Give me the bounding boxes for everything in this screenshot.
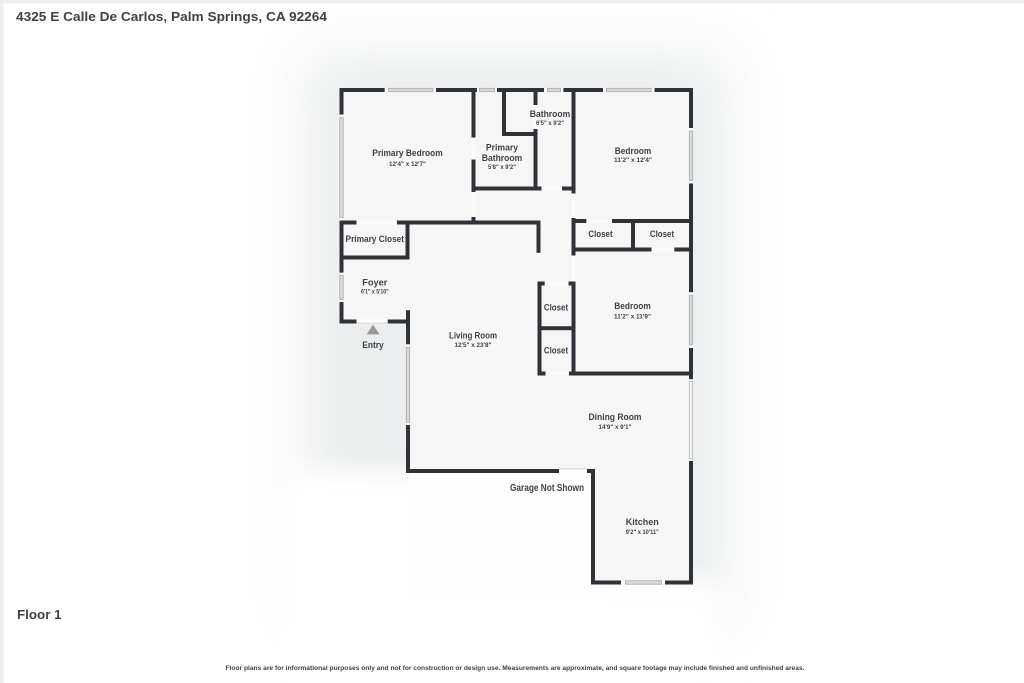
svg-text:Bedroom: Bedroom xyxy=(615,146,652,156)
svg-text:Garage Not Shown: Garage Not Shown xyxy=(510,483,584,494)
svg-text:14'9" x 9'1": 14'9" x 9'1" xyxy=(599,424,632,431)
svg-text:Bathroom: Bathroom xyxy=(482,153,522,163)
svg-text:11'2" x 11'9": 11'2" x 11'9" xyxy=(614,314,651,321)
svg-text:Closet: Closet xyxy=(544,303,568,313)
svg-text:12'5" x 23'8": 12'5" x 23'8" xyxy=(455,342,492,349)
svg-text:11'2" x 12'4": 11'2" x 12'4" xyxy=(614,157,652,164)
svg-text:9'2" x 10'11": 9'2" x 10'11" xyxy=(626,529,659,536)
svg-text:Bedroom: Bedroom xyxy=(614,301,651,311)
svg-text:Foyer: Foyer xyxy=(362,278,387,288)
svg-text:Dining Room: Dining Room xyxy=(589,412,642,422)
svg-text:Closet: Closet xyxy=(588,229,612,239)
svg-text:4325 E Calle De Carlos, Palm S: 4325 E Calle De Carlos, Palm Springs, CA… xyxy=(16,9,328,24)
svg-text:Primary Bedroom: Primary Bedroom xyxy=(372,148,443,158)
svg-text:Closet: Closet xyxy=(544,346,568,356)
svg-text:6'5" x 9'2": 6'5" x 9'2" xyxy=(536,120,564,127)
svg-text:6'1" x 5'10": 6'1" x 5'10" xyxy=(361,289,389,296)
svg-text:12'4" x 12'7": 12'4" x 12'7" xyxy=(389,161,426,168)
svg-text:Entry: Entry xyxy=(362,340,384,350)
svg-text:Primary: Primary xyxy=(486,142,519,152)
svg-text:Primary Closet: Primary Closet xyxy=(346,234,405,244)
svg-text:Floor plans are for informatio: Floor plans are for informational purpos… xyxy=(226,665,805,672)
svg-text:5'8" x 9'2": 5'8" x 9'2" xyxy=(488,164,516,171)
svg-text:Closet: Closet xyxy=(650,229,674,239)
svg-text:Bathroom: Bathroom xyxy=(530,109,570,119)
svg-text:Kitchen: Kitchen xyxy=(626,517,659,527)
svg-text:Living Room: Living Room xyxy=(449,331,497,341)
svg-text:Floor 1: Floor 1 xyxy=(17,608,62,622)
